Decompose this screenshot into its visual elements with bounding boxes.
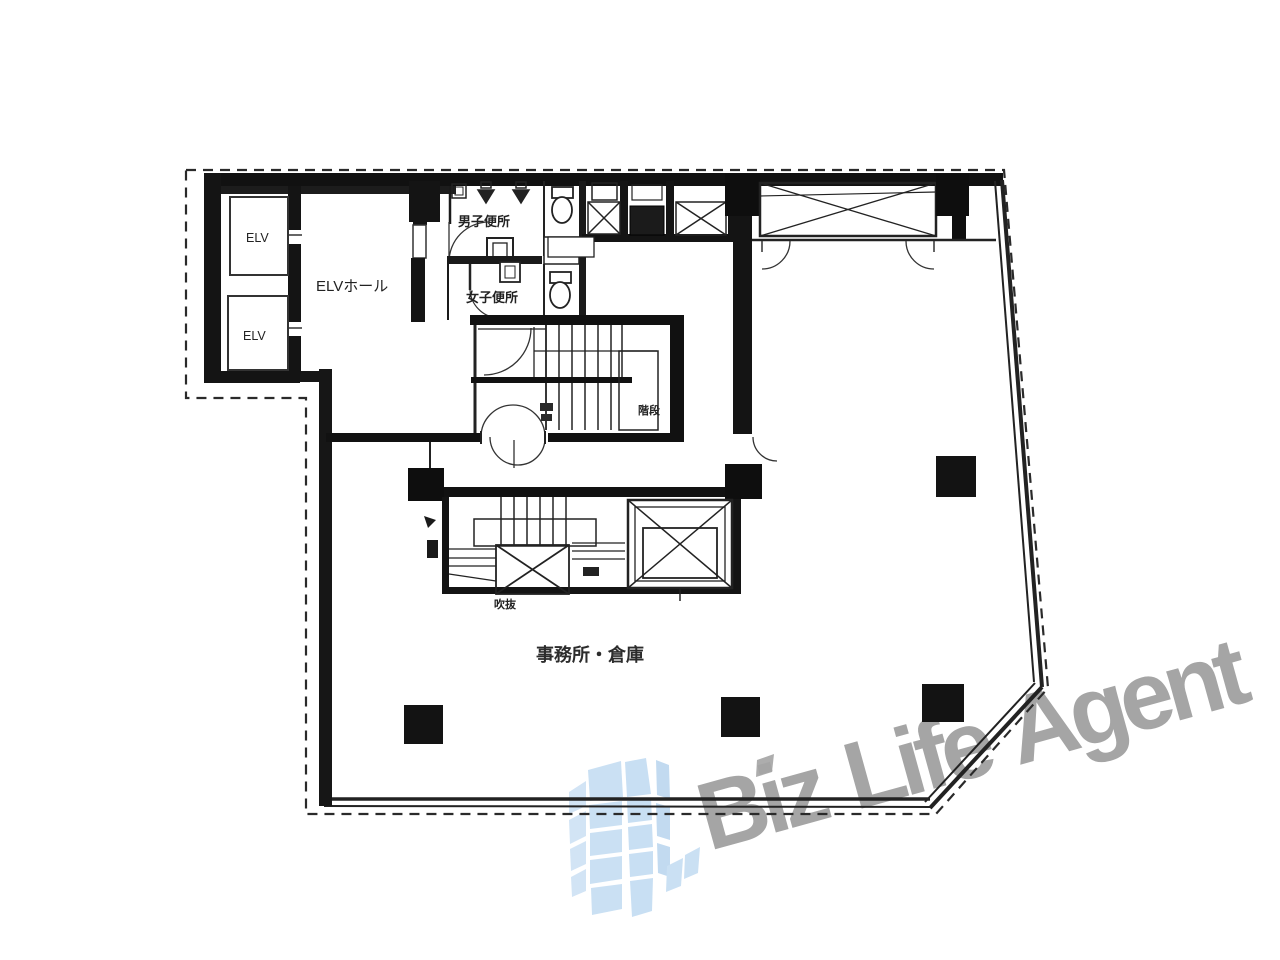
svg-text:ELV: ELV xyxy=(246,231,269,245)
svg-text:階段: 階段 xyxy=(638,403,660,417)
svg-text:ELVホール: ELVホール xyxy=(316,278,388,295)
svg-text:女子便所: 女子便所 xyxy=(466,290,518,305)
svg-text:事務所・倉庫: 事務所・倉庫 xyxy=(536,644,644,665)
svg-text:吹抜: 吹抜 xyxy=(494,597,517,611)
svg-text:男子便所: 男子便所 xyxy=(458,214,510,229)
svg-text:ELV: ELV xyxy=(243,329,266,343)
svg-text:Biz Life Agent: Biz Life Agent xyxy=(686,617,1260,871)
